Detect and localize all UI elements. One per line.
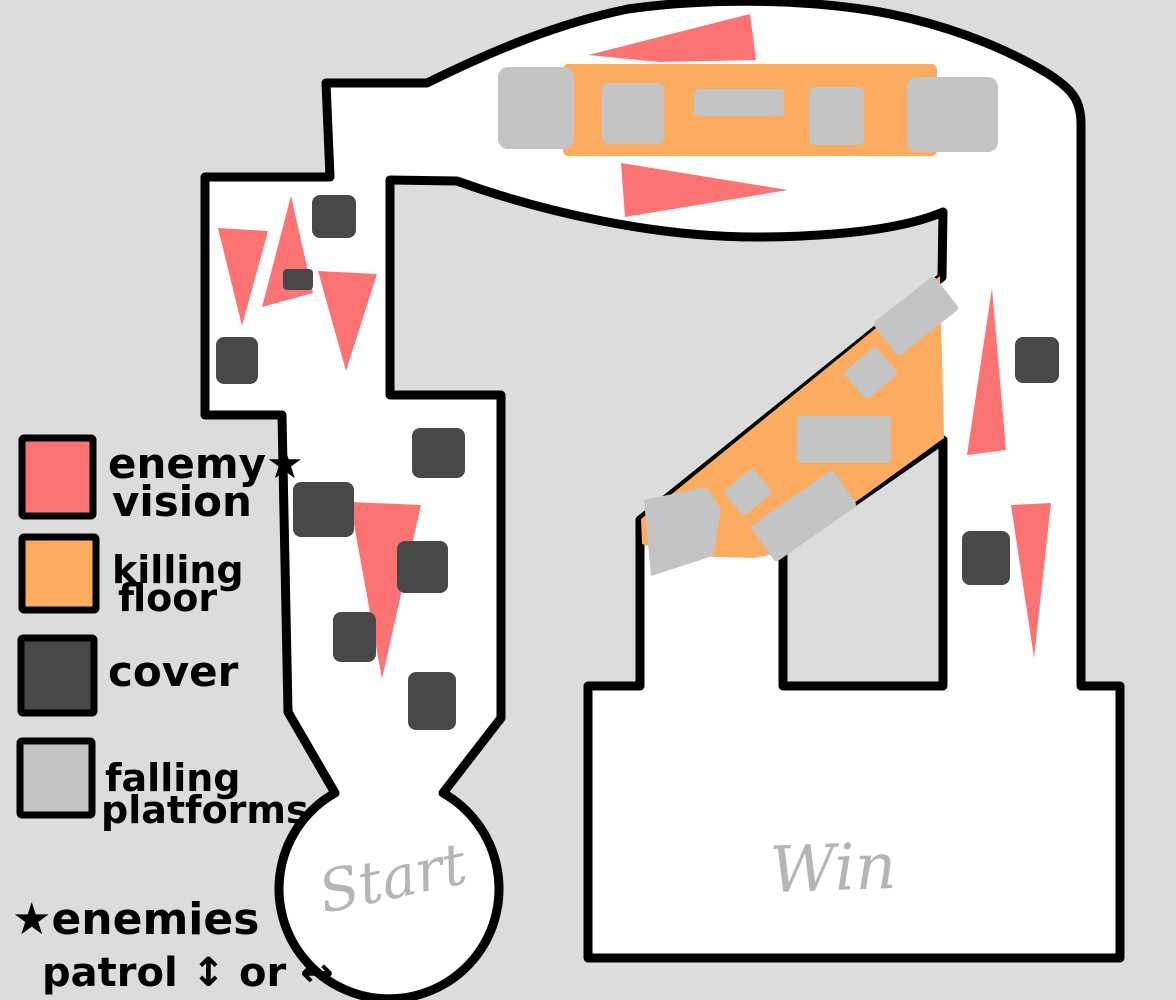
legend-label: cover bbox=[108, 647, 239, 696]
cover-block bbox=[333, 612, 376, 662]
cover-block bbox=[962, 531, 1010, 585]
cover-block bbox=[1015, 337, 1059, 383]
cover-block bbox=[293, 482, 354, 537]
cover-block bbox=[216, 337, 258, 384]
map-canvas: Start Win enemy★ vision killing floor co… bbox=[0, 0, 1176, 1000]
falling-platform bbox=[602, 83, 664, 144]
level-design-sketch: Start Win enemy★ vision killing floor co… bbox=[0, 0, 1176, 1000]
legend-label: platforms bbox=[101, 788, 309, 832]
falling-platform bbox=[797, 416, 891, 463]
legend-swatch-cover bbox=[21, 638, 94, 713]
cover-block bbox=[412, 428, 465, 478]
cover-block bbox=[408, 672, 456, 730]
falling-platform bbox=[809, 87, 864, 145]
falling-platform bbox=[498, 67, 574, 149]
cover-block bbox=[397, 541, 448, 593]
falling-platform bbox=[907, 77, 998, 152]
legend-label: vision bbox=[112, 477, 252, 526]
falling-platform bbox=[694, 89, 784, 116]
footnote-line: ★enemies bbox=[12, 894, 259, 945]
cover-block bbox=[312, 195, 356, 238]
legend-label: floor bbox=[118, 576, 217, 620]
cover-block bbox=[283, 269, 313, 290]
win-room-label: Win bbox=[769, 830, 898, 908]
legend-swatch-falling-platforms bbox=[20, 741, 92, 815]
legend-swatch-killing-floor bbox=[22, 537, 96, 610]
legend-swatch-enemy-vision bbox=[22, 438, 93, 516]
footnote-line: patrol ↕ or ↔ bbox=[42, 950, 334, 996]
